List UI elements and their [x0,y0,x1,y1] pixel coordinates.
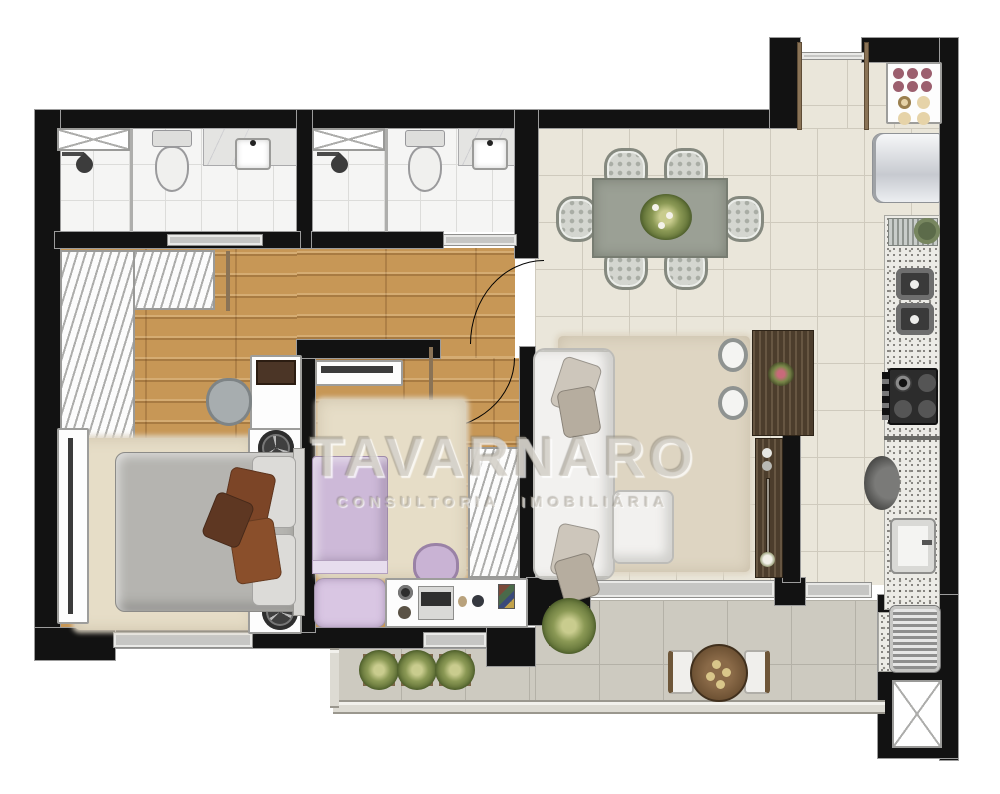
wall [312,232,443,248]
laundry-sink [890,518,936,574]
shower-divider [385,128,388,232]
mouse-icon [458,596,467,607]
washing-machine [890,606,940,672]
sideboard-vase [762,461,772,471]
bowl-icon [898,96,911,109]
bedroom-2-window [423,632,487,648]
table-setting-icon [712,660,721,669]
toilet [155,146,189,192]
drain-icon [910,315,919,324]
faucet-icon [250,140,256,146]
entry-door-jamb [864,42,869,130]
sideboard-runner [766,478,770,560]
potted-plant [359,650,399,690]
wall [487,628,535,666]
tv-icon [256,360,296,385]
master-door-leaf [226,251,230,311]
bathroom-2-door-threshold [443,234,517,246]
sideboard-flower [760,552,775,567]
desk-lamp-icon [398,585,413,600]
bar-stool [718,338,748,372]
entry-threshold [801,52,865,60]
potted-plant [435,650,475,690]
wall [297,340,440,358]
wall [775,578,805,605]
toilet-tank [152,130,192,147]
shower-divider [130,128,133,232]
large-potted-plant [542,598,596,654]
plate-icon [893,68,904,79]
tv-panel [57,428,89,624]
master-bedroom-window [113,632,253,648]
floor-plan: TAVARNARO CONSULTORIA IMOBILIÁRIA [0,0,1000,794]
sideboard-vase [762,448,772,458]
toilet [408,146,442,192]
tv-on-panel [68,438,73,614]
wall [35,110,772,128]
wall [297,110,312,248]
flower-icon [666,212,673,219]
duct-shaft [892,680,942,748]
dining-chair [722,196,764,242]
refrigerator [872,133,940,203]
pillow [314,578,386,628]
balcony-railing [333,700,885,714]
sofa-pillow [556,385,602,439]
potted-plant [397,650,437,690]
shower-box [57,128,130,151]
sofa-chaise [612,490,674,564]
kitchen-balcony-door [805,582,872,598]
flower-icon [652,204,659,211]
single-bed [312,456,388,566]
flower-icon [658,222,665,229]
plate-on-rack [914,218,940,244]
bowl-icon [472,595,484,607]
shelf-bar [321,366,393,373]
desk-chair [206,378,252,426]
drain-icon [910,280,919,289]
laundry-faucet [922,540,932,545]
bar-flowers [768,362,794,386]
entry-door-jamb [797,42,802,130]
bed-blanket-band [312,560,388,574]
picture-frame-icon [498,584,515,609]
counter-divider [884,436,940,440]
wall [770,38,800,128]
shelf [315,360,403,386]
counter-basin [864,456,900,510]
wardrobe [468,447,520,578]
living-sliding-door [590,580,775,598]
speaker-icon [398,606,411,619]
shower-box [312,128,385,151]
faucet-icon [487,140,493,146]
bathroom-1-door-threshold [167,234,263,246]
burner-icon [894,374,912,392]
wall [515,110,538,258]
cooktop-knobs [882,372,889,420]
wall [35,628,115,660]
bar-stool [718,386,748,420]
balcony-round-table [690,644,748,702]
balcony-railing-left [330,648,339,708]
wall [783,425,800,582]
toilet-tank [405,130,445,147]
laptop-keys [421,592,451,606]
